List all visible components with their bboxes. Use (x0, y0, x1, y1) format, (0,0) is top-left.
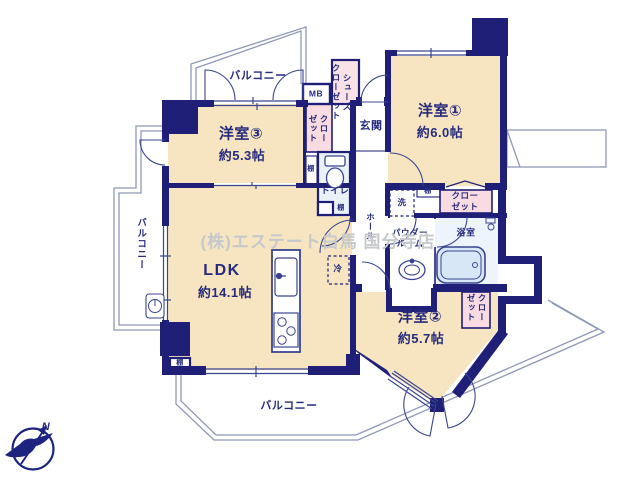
washer-label: 洗 (397, 198, 406, 209)
wall (350, 255, 356, 375)
shelf-label-toilet-left: 棚 (307, 166, 315, 175)
room3-size: 約5.3帖 (219, 148, 266, 164)
balcony-top-outline-inner (196, 31, 301, 104)
mb-label: MB (309, 89, 323, 100)
shelf-label-ldk: 棚 (176, 360, 184, 369)
wall (350, 284, 362, 292)
wall (385, 183, 445, 190)
balcony-left-label: バルコニー (134, 218, 146, 271)
balcony-bottom-label: バルコニー (260, 400, 317, 414)
toilet-icon (325, 156, 345, 188)
wall (169, 183, 214, 188)
wall (506, 296, 542, 304)
wall (498, 190, 506, 262)
wall (385, 50, 397, 56)
toilet-label: トイレ (321, 185, 350, 196)
watermark: (株)エステート白馬 国分寺店 (200, 228, 435, 253)
room1-name: 洋室① (418, 103, 462, 122)
wall (472, 18, 508, 56)
north-label: N (42, 421, 50, 435)
door-arc-balcony-left (140, 140, 165, 165)
wall (296, 100, 308, 107)
wall (433, 284, 507, 292)
shoes-closet-label: シューズ クローゼット (330, 64, 352, 121)
bath-label: 浴室 (456, 227, 475, 238)
neighbor-partition (507, 130, 606, 167)
floorplan: バルコニー MB シューズ クローゼット クロー ゼット 玄関 洋室① 約6.0… (0, 0, 640, 480)
closet-entrance-label: クロー ゼット (307, 115, 329, 144)
shelf-toilet-bottom-box (318, 202, 333, 215)
room2-size: 約5.7帖 (398, 331, 445, 347)
wall (385, 186, 390, 216)
wall (162, 166, 169, 226)
wall (160, 322, 190, 356)
wall (414, 213, 507, 218)
stove-icon (274, 313, 298, 347)
ldk-size: 約14.1帖 (198, 285, 252, 301)
closet-room2-label: クロー ゼット (465, 294, 487, 323)
balcony-top-label: バルコニー (229, 70, 286, 84)
balcony-sink-icon (146, 294, 164, 318)
washbasin-icon (399, 259, 425, 279)
wall (162, 134, 169, 142)
room3-name: 洋室③ (219, 126, 263, 145)
room1-size: 約6.0帖 (417, 125, 464, 141)
shelf-label-wash: 棚 (424, 188, 432, 197)
wall (303, 104, 306, 183)
wall (485, 183, 507, 190)
entrance-label: 玄関 (360, 120, 383, 134)
room2-name: 洋室② (398, 309, 442, 328)
wall (162, 366, 206, 375)
door-arc-front-door (361, 75, 388, 102)
wall (498, 296, 506, 334)
balcony-top-outline (191, 27, 306, 104)
wall (388, 213, 390, 218)
ldk-name: LDK (203, 261, 240, 281)
closet-bathrow-label: クロー ゼット (451, 190, 478, 211)
fridge-label: 冷 (333, 264, 342, 275)
wall (198, 100, 214, 107)
shelf-label-toilet-bottom: 棚 (337, 205, 345, 214)
wall (500, 56, 507, 190)
wall (385, 56, 391, 152)
wall (162, 100, 198, 134)
